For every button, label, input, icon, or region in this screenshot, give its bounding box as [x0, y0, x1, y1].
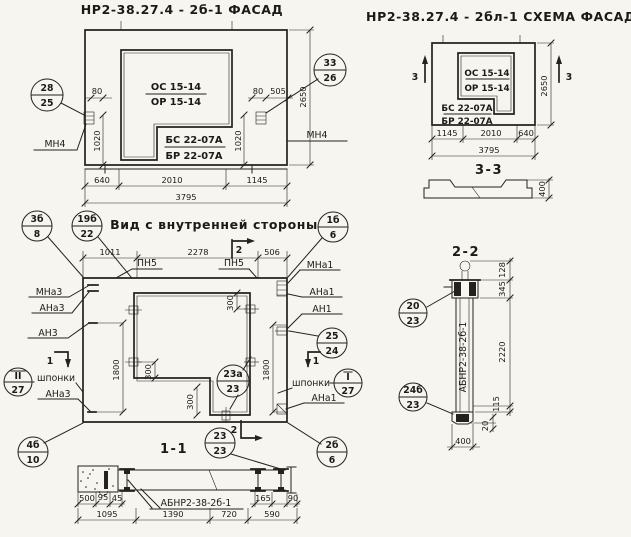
- dim-640: 640: [518, 128, 534, 138]
- marker-top-value: 2б: [326, 440, 339, 451]
- marker-top-value: 4б: [27, 440, 40, 451]
- dim-height-2650: 2650: [298, 86, 308, 107]
- inner-edge-anchors: [88, 281, 289, 414]
- dim-1095: 1095: [96, 509, 117, 519]
- dim-45: 45: [112, 493, 123, 503]
- dim-345: 345: [497, 281, 507, 297]
- marker-top-value: 23: [214, 431, 227, 442]
- drawing-sheet: НР2-38.27.4 - 2б-1 ФАСАД ОС 15-14 ОР 15-…: [0, 0, 631, 537]
- dim-height-2650: 2650: [539, 75, 549, 96]
- inner-view: Вид с внутренней стороны 1011 2278: [4, 211, 362, 467]
- dim-1800-left: 1800: [111, 359, 121, 380]
- schema-view: НР2-38.27.4 - 2бл-1 СХЕМА ФАСАДА ОС 15-1…: [366, 9, 631, 201]
- marker-bottom-value: 27: [342, 386, 355, 397]
- marker-bottom-value: 23: [214, 446, 227, 457]
- marker-top-value: 19б: [77, 214, 97, 225]
- inner-top-dimensions: 1011 2278 506: [80, 247, 290, 278]
- dim-506: 506: [264, 247, 280, 257]
- section-1-1-profile: [78, 466, 296, 496]
- dim-400: 400: [537, 181, 547, 197]
- section-2-2-profile: АБНР2-38-2б-1: [444, 261, 480, 424]
- marker-bottom-value: 6: [329, 455, 335, 466]
- section-2-2-marker-24b: 24б 23: [399, 383, 453, 414]
- pn5-right-label: ПН5: [224, 258, 244, 269]
- schema-block-mark-bottom: БР 22-07А: [441, 117, 492, 127]
- marker-bottom-value: 23: [227, 384, 240, 395]
- section-2-2-title: 2-2: [452, 245, 480, 260]
- dim-300-c: 300: [185, 394, 195, 410]
- panel-mark-label: АБНР2-38-2б-1: [161, 498, 232, 509]
- dim-20: 20: [480, 421, 490, 432]
- dim-590: 590: [264, 509, 280, 519]
- label-shponki-right: шпонки: [292, 378, 330, 389]
- marker-bottom-value: 23: [407, 316, 420, 327]
- section-2-2-marker-20: 20 23: [399, 291, 455, 327]
- marker-bottom-value: 8: [34, 229, 40, 240]
- section-1-1-marker-23: 23 23: [205, 428, 284, 470]
- marker-top-value: II: [15, 371, 22, 382]
- schema-window-mark-bottom: ОР 15-14: [464, 84, 509, 94]
- facade-anchor-left-label: МН4: [45, 139, 66, 150]
- dim-400: 400: [455, 436, 471, 446]
- dim-90: 90: [288, 493, 299, 503]
- dim-1145: 1145: [436, 128, 457, 138]
- marker-top-value: 24б: [403, 385, 423, 396]
- inner-marker-23a: 23а 23: [217, 357, 251, 409]
- section-3-3: 3-3 400: [424, 163, 553, 201]
- dim-95: 95: [98, 492, 109, 502]
- pn5-left-label: ПН5: [137, 258, 157, 269]
- inner-marker-3b8: 3б 8: [22, 211, 83, 277]
- marker-top-value: 20: [407, 301, 420, 312]
- inner-title: Вид с внутренней стороны: [110, 217, 318, 232]
- cut-label: 3: [412, 72, 418, 83]
- marker-bottom-value: 27: [12, 385, 25, 396]
- dim-2010: 2010: [480, 128, 501, 138]
- label-mna3: МНа3: [36, 287, 63, 298]
- dim-80-left: 80: [92, 86, 103, 96]
- marker-top-value: 1б: [327, 215, 340, 226]
- dim-128: 128: [497, 262, 507, 278]
- dim-500: 500: [79, 493, 95, 503]
- dim-1020-left: 1020: [92, 130, 102, 151]
- inner-left-labels: МНа3 АНа3 АН3 шпонки АНа3: [28, 286, 90, 411]
- inner-cut-mark-2-top: 2: [232, 238, 255, 258]
- dim-total-3795: 3795: [478, 145, 499, 155]
- inner-marker-4b10: 4б 10: [18, 423, 83, 467]
- dim-1145: 1145: [246, 175, 267, 185]
- marker-bottom-value: 26: [324, 73, 337, 84]
- inner-cut-mark-2-bottom: 2: [231, 421, 263, 441]
- marker-top-value: 3б: [31, 214, 44, 225]
- marker-bottom-value: 23: [407, 400, 420, 411]
- inner-marker-key-left: II 27: [4, 368, 34, 396]
- dim-80-right: 80: [253, 86, 264, 96]
- marker-bottom-value: 24: [326, 346, 339, 357]
- label-mna1: МНа1: [307, 260, 334, 271]
- cut-label: 3: [566, 72, 572, 83]
- cut-label: 2: [236, 245, 242, 256]
- marker-bottom-value: 22: [81, 229, 94, 240]
- facade-block-mark-bottom: БР 22-07А: [166, 151, 223, 162]
- marker-top-value: 33: [324, 58, 337, 69]
- schema-block-mark-top: БС 22-07А: [441, 104, 492, 114]
- marker-top-value: 25: [326, 331, 339, 342]
- panel-mark-label-vertical: АБНР2-38-2б-1: [458, 322, 469, 393]
- section-1-1-title: 1-1: [160, 442, 188, 457]
- facade-window-mark-top: ОС 15-14: [151, 82, 201, 93]
- inner-marker-2b6: 2б 6: [288, 423, 347, 467]
- marker-top-value: 23а: [223, 369, 242, 380]
- dim-1800-right: 1800: [261, 359, 271, 380]
- dim-1390: 1390: [162, 509, 183, 519]
- dim-115: 115: [491, 396, 501, 412]
- dim-165: 165: [255, 493, 271, 503]
- marker-top-value: I: [346, 372, 349, 383]
- inner-marker-25-24: 25 24: [289, 328, 347, 358]
- facade-window-mark-bottom: ОР 15-14: [151, 97, 201, 108]
- dim-300-a: 300: [225, 295, 235, 311]
- dim-1020-right: 1020: [233, 130, 243, 151]
- dim-total-3795: 3795: [175, 192, 196, 202]
- facade-marker-left: 28 25: [31, 79, 63, 111]
- inner-cut-mark-1-right: 1: [305, 352, 320, 368]
- facade-marker-right: 33 26: [314, 54, 346, 86]
- facade-anchor-right-label: МН4: [307, 130, 328, 141]
- facade-title: НР2-38.27.4 - 2б-1 ФАСАД: [81, 2, 284, 17]
- cut-label: 1: [47, 356, 53, 367]
- schema-window-mark-top: ОС 15-14: [464, 69, 509, 79]
- schema-cut-mark-left: 3: [412, 55, 428, 83]
- marker-top-value: 28: [41, 83, 54, 94]
- label-ana3-low: АНа3: [46, 389, 71, 400]
- label-an1: АН1: [312, 304, 331, 315]
- cut-label: 1: [313, 356, 319, 367]
- section-1-1-panel-label: АБНР2-38-2б-1: [128, 480, 243, 509]
- dim-2278: 2278: [187, 247, 208, 257]
- facade-dimensions: 80 80 505 1020 1020 2650 640 2010 1145 3…: [82, 27, 314, 207]
- drawing-canvas: НР2-38.27.4 - 2б-1 ФАСАД ОС 15-14 ОР 15-…: [0, 0, 631, 537]
- facade-block-mark-top: БС 22-07А: [166, 135, 223, 146]
- label-ana1-low: АНа1: [312, 393, 337, 404]
- section-1-1: 1-1 23 23 АБНР2-38-2б-1: [75, 428, 300, 524]
- dim-300-b: 300: [143, 364, 153, 380]
- inner-cut-mark-1-left: 1: [47, 352, 71, 368]
- dim-640: 640: [94, 175, 110, 185]
- facade-view: НР2-38.27.4 - 2б-1 ФАСАД ОС 15-14 ОР 15-…: [31, 2, 347, 207]
- marker-bottom-value: 25: [41, 98, 54, 109]
- section-2-2: 2-2 АБНР2-38-2б-1 20 23 24б 23: [399, 245, 513, 450]
- marker-bottom-value: 10: [27, 455, 40, 466]
- dim-505: 505: [270, 86, 286, 96]
- marker-bottom-value: 6: [330, 230, 336, 241]
- label-shponki-left: шпонки: [37, 373, 75, 384]
- schema-cut-mark-right: 3: [556, 55, 572, 83]
- facade-opening: ОС 15-14 ОР 15-14 БС 22-07А БР 22-07А: [121, 50, 232, 162]
- schema-title: НР2-38.27.4 - 2бл-1 СХЕМА ФАСАДА: [366, 9, 631, 24]
- schema-opening: ОС 15-14 ОР 15-14 БС 22-07А БР 22-07А: [441, 53, 514, 127]
- label-an3: АН3: [38, 328, 57, 339]
- dim-2220: 2220: [497, 341, 507, 362]
- section-3-3-title: 3-3: [475, 163, 503, 178]
- label-ana3: АНа3: [40, 303, 65, 314]
- label-ana1: АНа1: [310, 287, 335, 298]
- dim-2010: 2010: [161, 175, 182, 185]
- dim-720: 720: [221, 509, 237, 519]
